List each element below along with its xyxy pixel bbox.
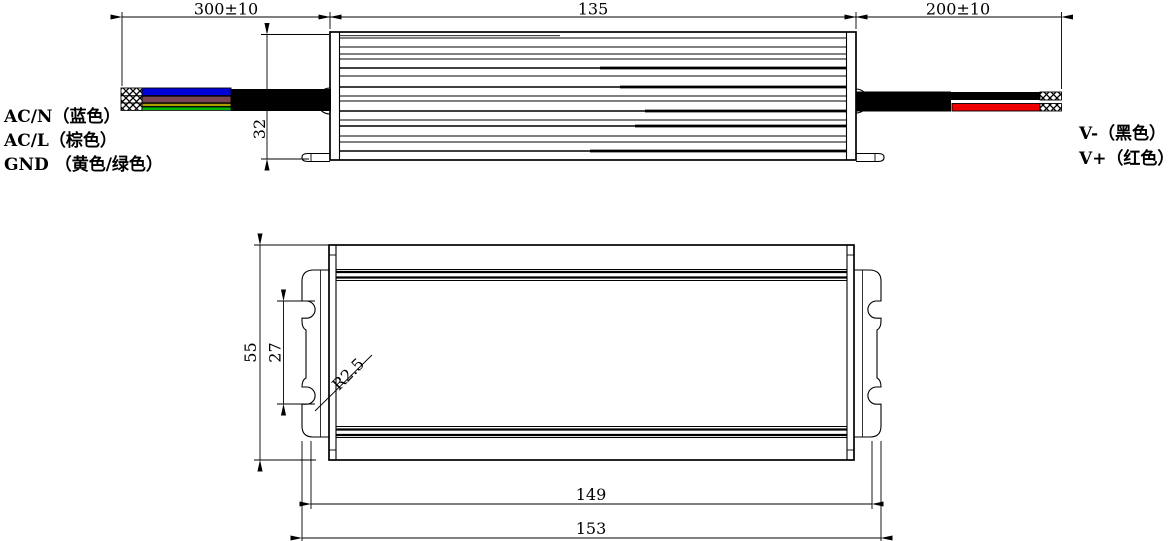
wire-red — [952, 104, 1040, 112]
wire-tip-hatch — [121, 103, 142, 110]
wire-blue — [142, 88, 231, 96]
dim-overall-length: 153 — [576, 519, 607, 538]
plan-view-dimensions: 55 27 R2.5 149 153 — [241, 245, 881, 541]
wire-tip-hatch — [1040, 92, 1062, 100]
input-cable — [121, 88, 331, 111]
dim-slot-radius: R2.5 — [328, 354, 368, 394]
dim-slot-spacing: 27 — [266, 342, 285, 362]
dim-input-cable-length: 300±10 — [194, 0, 258, 19]
dim-body-height: 32 — [250, 119, 269, 139]
right-mounting-ear — [854, 270, 881, 437]
right-foot — [856, 154, 884, 162]
edge-grooves — [336, 270, 847, 438]
output-cable — [856, 92, 1062, 112]
side-view: 300±10 135 200±10 32 AC/N（蓝色） AC/L（棕色） G… — [3, 0, 1168, 175]
dim-output-cable-length: 200±10 — [926, 0, 990, 19]
label-gnd: GND （黄色/绿色） — [4, 154, 163, 175]
plan-view: 55 27 R2.5 149 153 — [241, 245, 881, 541]
wire-tip-hatch — [1040, 104, 1062, 112]
side-view-dimensions: 300±10 135 200±10 32 — [122, 0, 1062, 159]
output-cable-sheath — [856, 92, 951, 112]
wire-tip-hatch — [121, 96, 142, 103]
input-cable-sheath — [231, 89, 331, 111]
left-mounting-ear — [302, 270, 329, 437]
wire-tip-hatch — [121, 88, 142, 96]
dim-mount-length: 149 — [576, 485, 607, 504]
label-ac-l: AC/L（棕色） — [3, 130, 117, 151]
wire-green — [142, 107, 231, 110]
dim-body-length: 135 — [578, 0, 609, 19]
label-v-plus: V+（红色） — [1078, 148, 1168, 169]
technical-drawing: 300±10 135 200±10 32 AC/N（蓝色） AC/L（棕色） G… — [0, 0, 1168, 541]
heatsink-fins — [340, 38, 847, 151]
label-ac-n: AC/N（蓝色） — [3, 106, 120, 127]
wire-yellow — [142, 103, 231, 106]
dim-body-width: 55 — [241, 342, 260, 362]
label-v-minus: V-（黑色） — [1078, 123, 1166, 144]
wire-brown — [142, 96, 231, 103]
wire-black — [951, 92, 1041, 100]
left-foot — [302, 154, 330, 162]
